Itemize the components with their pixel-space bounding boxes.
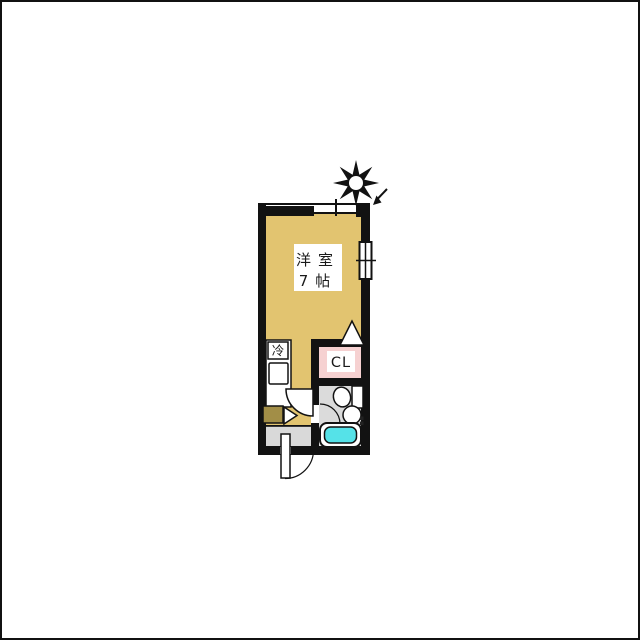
entrance-door-leaf: [281, 434, 290, 478]
wall-top-left-segment: [258, 206, 314, 216]
floorplan-page: 冷 CL 洋室 7帖: [0, 0, 640, 640]
top-window-outer-line: [258, 203, 370, 205]
wall-closet-bottom: [311, 378, 370, 386]
genkan-step-line: [266, 425, 311, 427]
north-star-center: [349, 176, 363, 190]
room-size-label: 7帖: [299, 272, 338, 290]
closet-label: CL: [331, 355, 351, 371]
direction-arrow-line: [377, 189, 387, 200]
top-window-tick: [335, 199, 337, 216]
wash-basin: [343, 406, 361, 424]
wall-bath-left-lower: [311, 423, 319, 448]
basin-faucet: [360, 417, 364, 421]
fridge-label: 冷: [272, 343, 285, 358]
floorplan-drawing: 冷 CL 洋室 7帖: [0, 0, 640, 640]
shoe-cabinet: [263, 406, 283, 423]
kitchen-sink: [269, 363, 288, 384]
side-window: [356, 242, 376, 279]
bathtub: [325, 427, 357, 443]
compass: [333, 160, 387, 206]
toilet-tank: [352, 386, 363, 408]
room-name-label: 洋室: [296, 251, 340, 269]
basin-faucet-2: [360, 422, 364, 426]
room-label-group: 洋室 7帖: [294, 244, 342, 291]
